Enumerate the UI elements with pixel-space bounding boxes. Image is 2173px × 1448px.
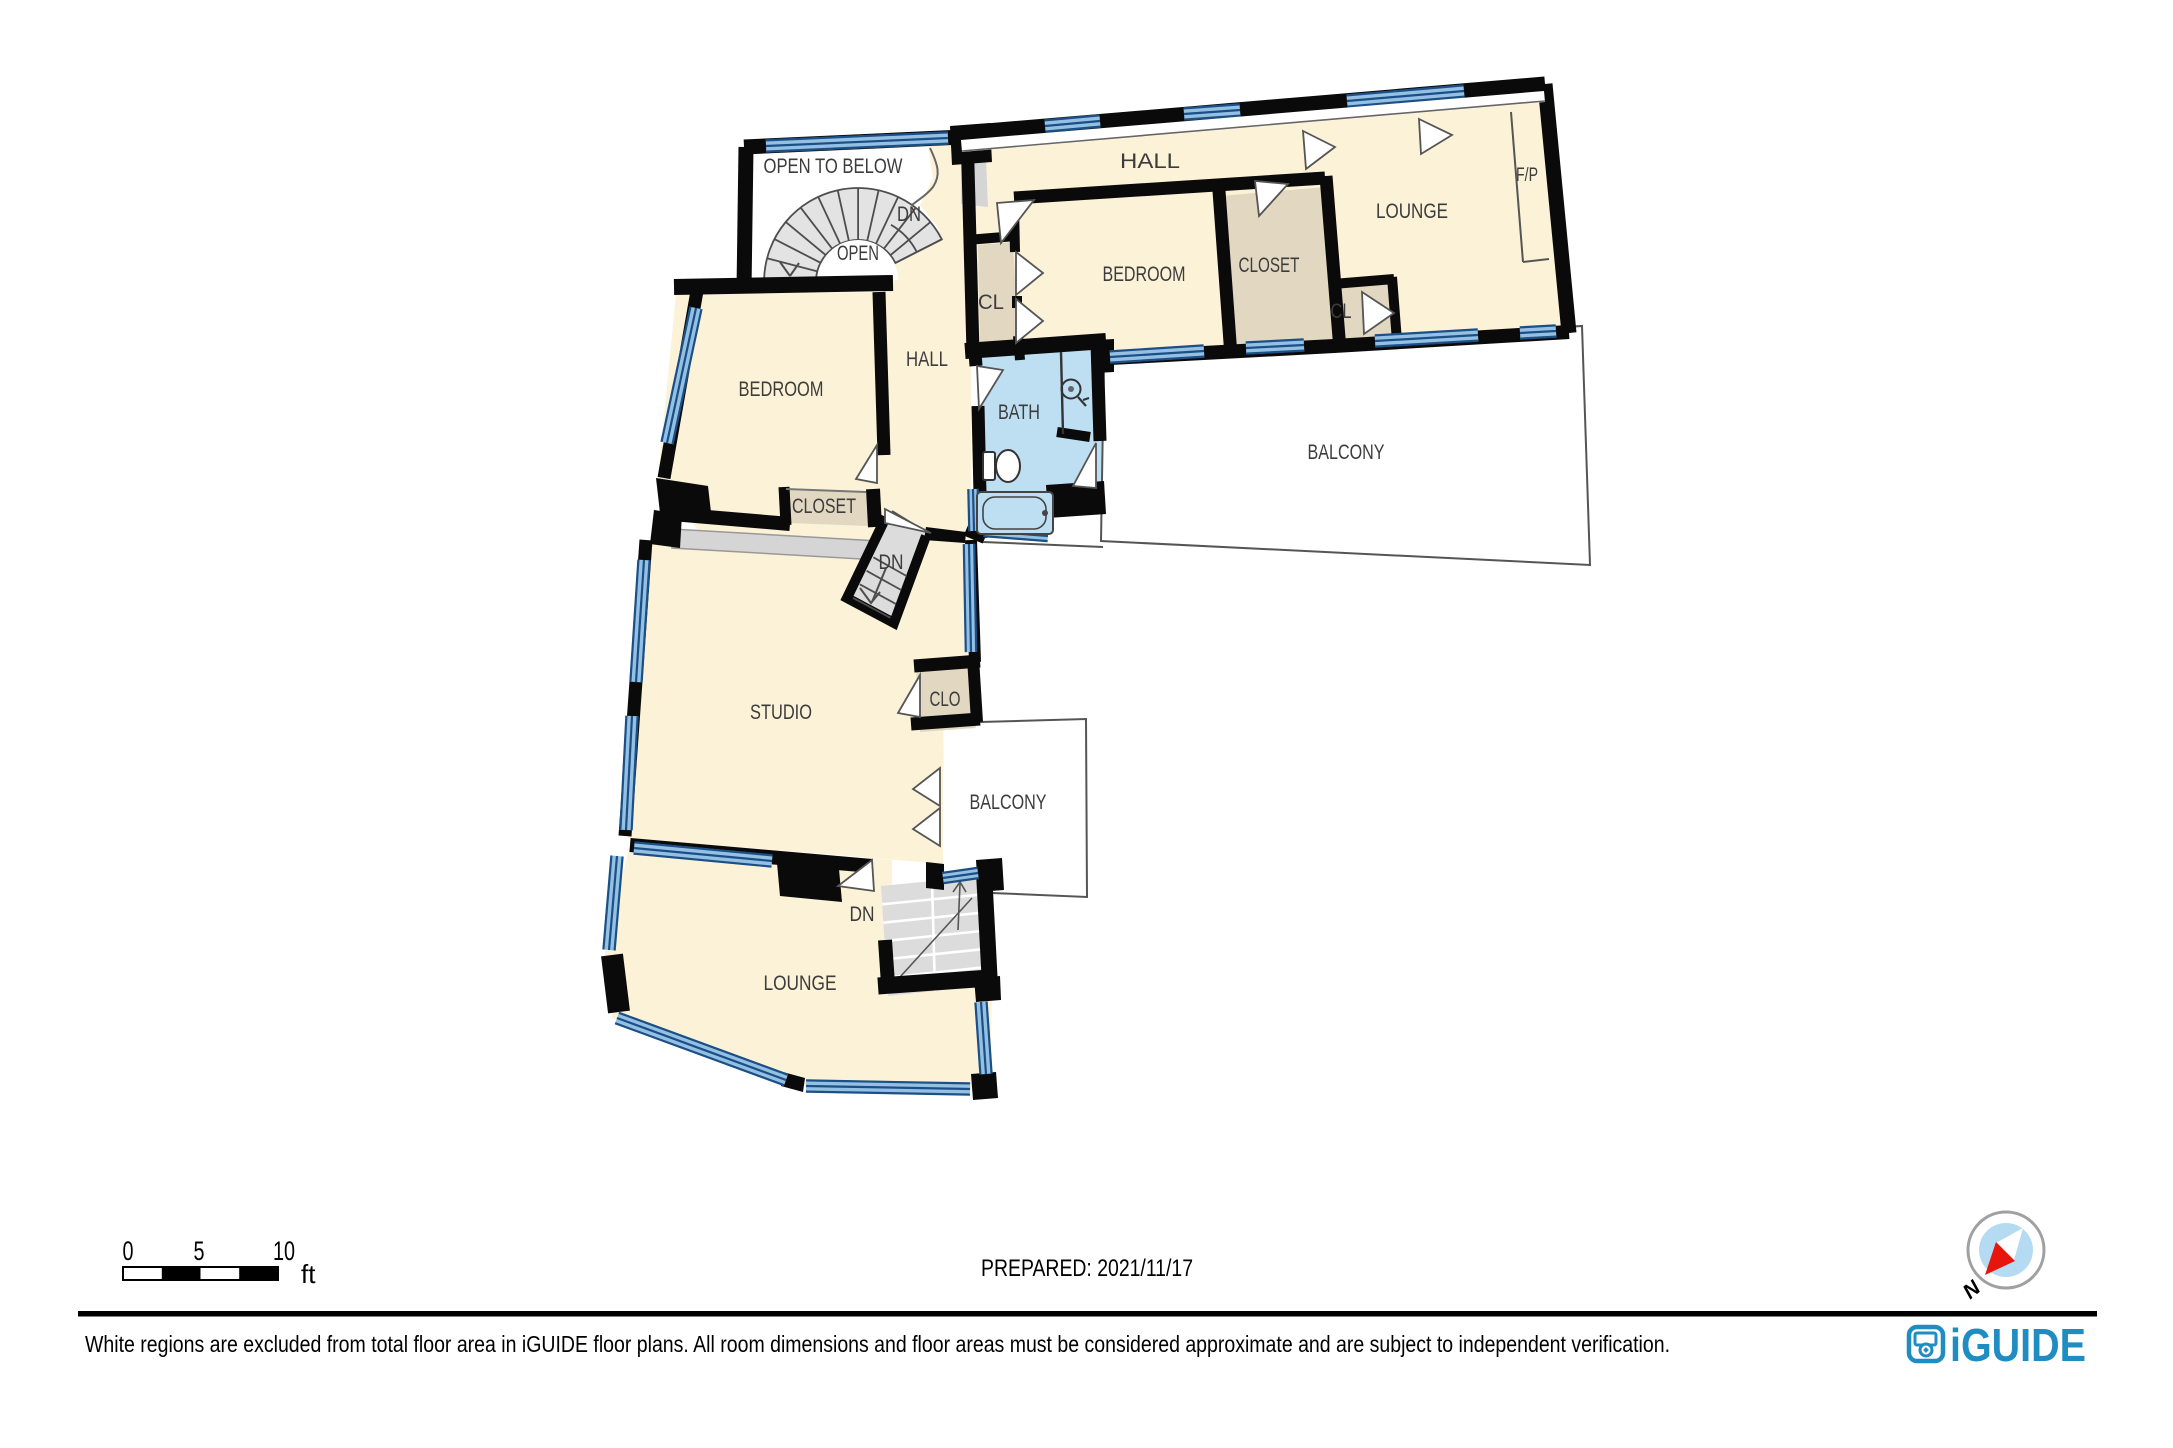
svg-text:DN: DN [879,551,904,574]
svg-text:CLO: CLO [930,688,961,711]
svg-text:HALL: HALL [906,348,948,371]
svg-text:White regions are excluded fro: White regions are excluded from total fl… [85,1331,1670,1357]
svg-text:OPEN: OPEN [837,242,879,265]
svg-text:PREPARED: 2021/11/17: PREPARED: 2021/11/17 [981,1255,1193,1282]
svg-text:iGUIDE: iGUIDE [1950,1319,2086,1371]
svg-text:HALL: HALL [1120,150,1180,173]
svg-text:ft: ft [301,1259,316,1289]
svg-text:CL: CL [1331,300,1352,323]
svg-text:BATH: BATH [998,401,1040,424]
svg-text:DN: DN [897,203,921,226]
svg-text:BEDROOM: BEDROOM [1103,263,1186,286]
svg-text:10: 10 [273,1236,295,1266]
svg-text:OPEN TO BELOW: OPEN TO BELOW [764,155,903,178]
svg-text:F/P: F/P [1516,165,1538,186]
svg-text:CLOSET: CLOSET [1239,254,1300,277]
svg-text:CLOSET: CLOSET [792,495,856,518]
svg-text:LOUNGE: LOUNGE [1376,200,1448,223]
svg-text:BEDROOM: BEDROOM [739,378,824,401]
svg-text:CL: CL [978,291,1004,314]
svg-text:BALCONY: BALCONY [1308,441,1385,464]
svg-text:LOUNGE: LOUNGE [764,972,837,995]
svg-text:DN: DN [850,903,875,926]
svg-text:BALCONY: BALCONY [970,791,1047,814]
svg-text:STUDIO: STUDIO [750,701,812,724]
svg-text:5: 5 [194,1236,205,1266]
svg-text:0: 0 [123,1236,134,1266]
